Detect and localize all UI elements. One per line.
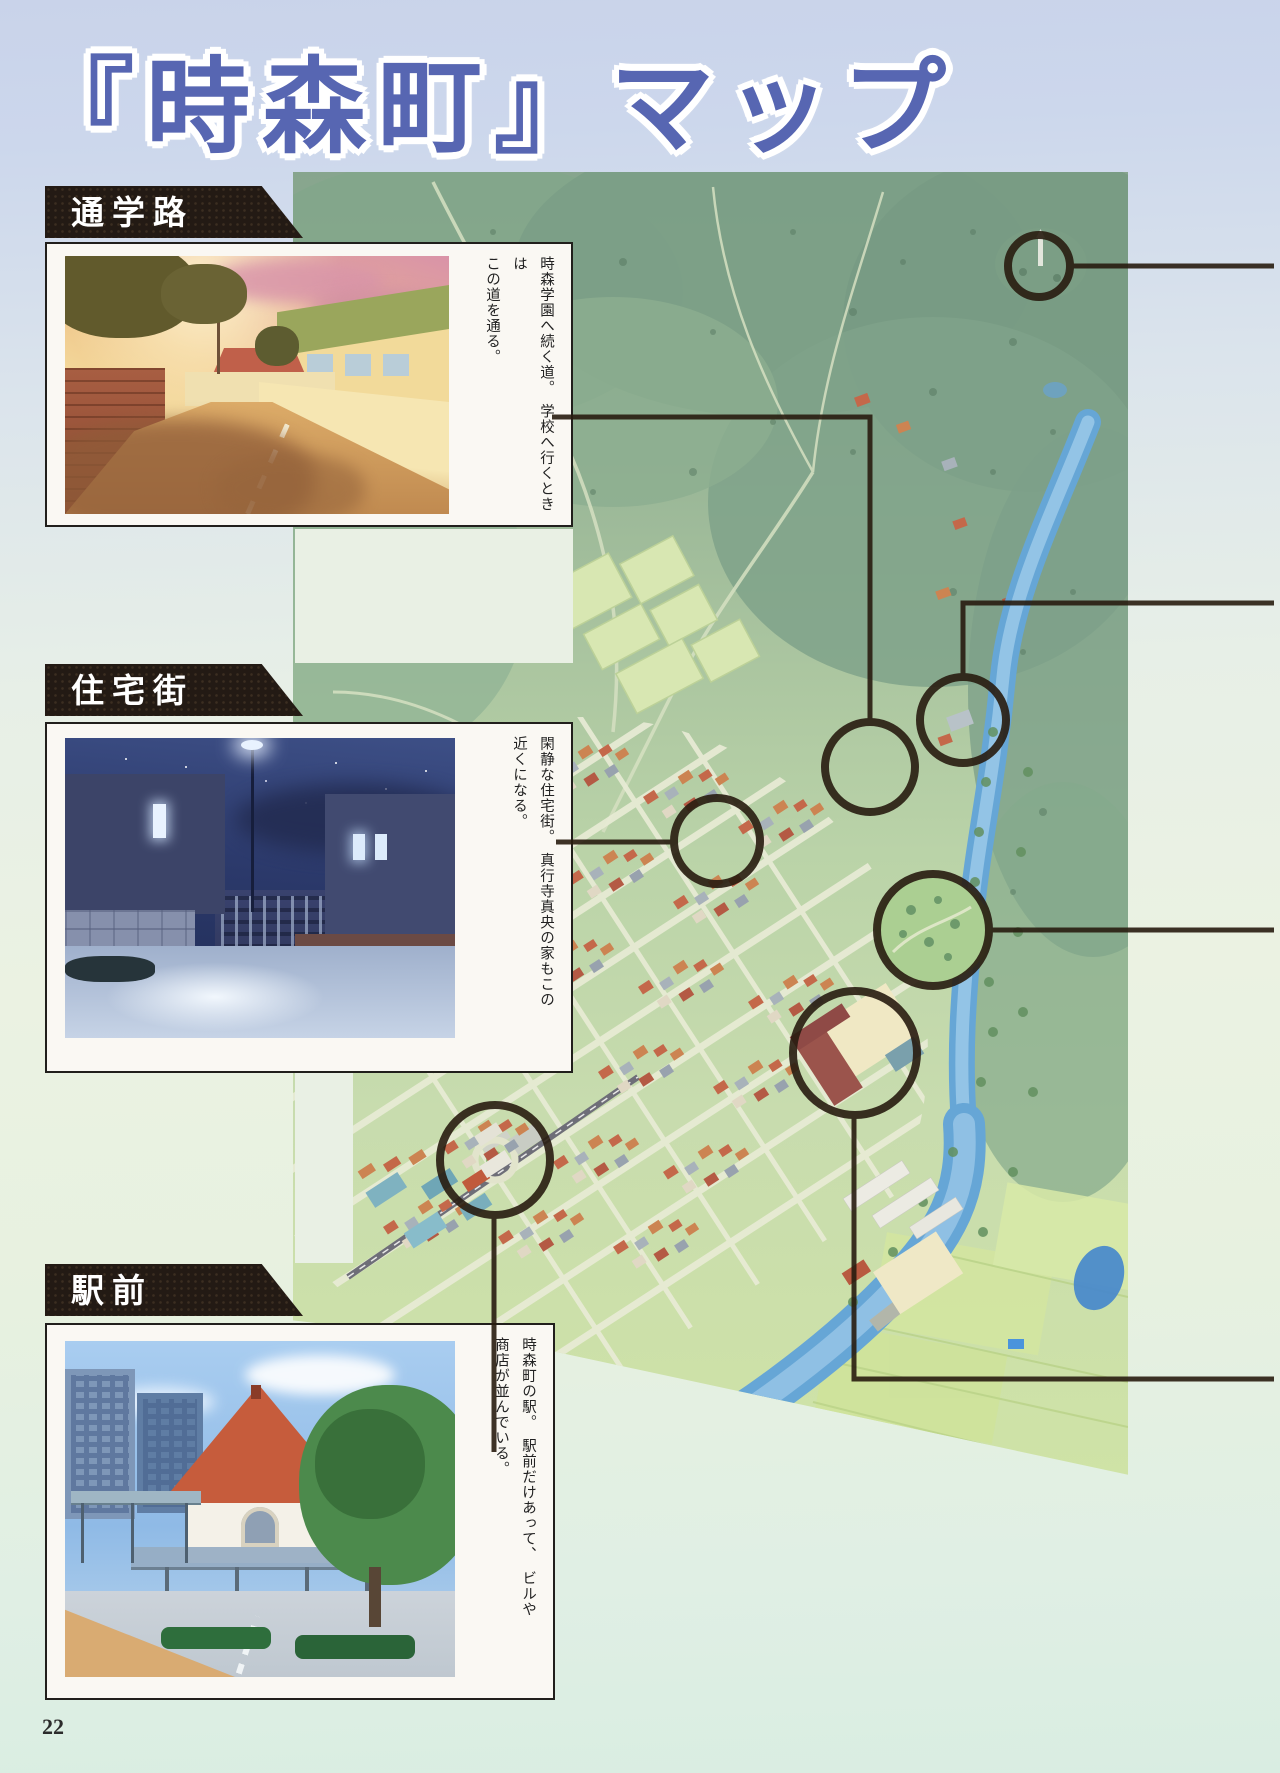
caption-residential: 閑静な住宅街。 真行寺真央の家もこの 近くになる。 xyxy=(505,736,559,1059)
bus-shelter-posts xyxy=(81,1503,84,1563)
tree-silhouette xyxy=(161,264,247,324)
section-banner-residential: 住宅街 xyxy=(45,664,303,716)
artbook-page: 『時森町』マップ 通学路 時森学園へ続く道。 学校へ行くときは この道を通る。 … xyxy=(0,0,1280,1773)
hedge xyxy=(161,1627,271,1649)
background-gap-upper xyxy=(295,529,573,663)
section-banner-station: 駅前 xyxy=(45,1264,303,1316)
stars xyxy=(125,758,127,760)
photo-school-road-sunset xyxy=(65,256,449,514)
roof-ridge xyxy=(251,1385,261,1399)
tree-silhouette xyxy=(255,326,299,366)
caption-school-road: 時森学園へ続く道。 学校へ行くときは この道を通る。 xyxy=(478,256,559,513)
caption-station: 時森町の駅。 駅前だけあって、 ビルや 商店が並んでいる。 xyxy=(487,1337,541,1686)
hedge xyxy=(295,1635,415,1659)
photo-station-front xyxy=(65,1341,455,1677)
street-lamp-light xyxy=(241,740,263,750)
street-lamp-pole xyxy=(251,744,254,912)
house xyxy=(65,774,225,914)
photo-residential-night xyxy=(65,738,455,1038)
background-gap-lower xyxy=(295,1073,353,1263)
large-tree xyxy=(299,1385,455,1585)
tree-shadow xyxy=(215,454,365,514)
house xyxy=(325,794,455,954)
panel-residential: 閑静な住宅街。 真行寺真央の家もこの 近くになる。 xyxy=(45,722,573,1073)
bus-shelter xyxy=(71,1491,201,1505)
panel-station: 時森町の駅。 駅前だけあって、 ビルや 商店が並んでいる。 xyxy=(45,1323,555,1700)
panel-school-road: 時森学園へ続く道。 学校へ行くときは この道を通る。 xyxy=(45,242,573,527)
page-number: 22 xyxy=(42,1714,64,1740)
arched-window xyxy=(241,1507,279,1547)
section-banner-school-road: 通学路 xyxy=(45,186,303,238)
page-title: 『時森町』マップ xyxy=(30,22,1030,173)
hedge xyxy=(65,956,155,982)
